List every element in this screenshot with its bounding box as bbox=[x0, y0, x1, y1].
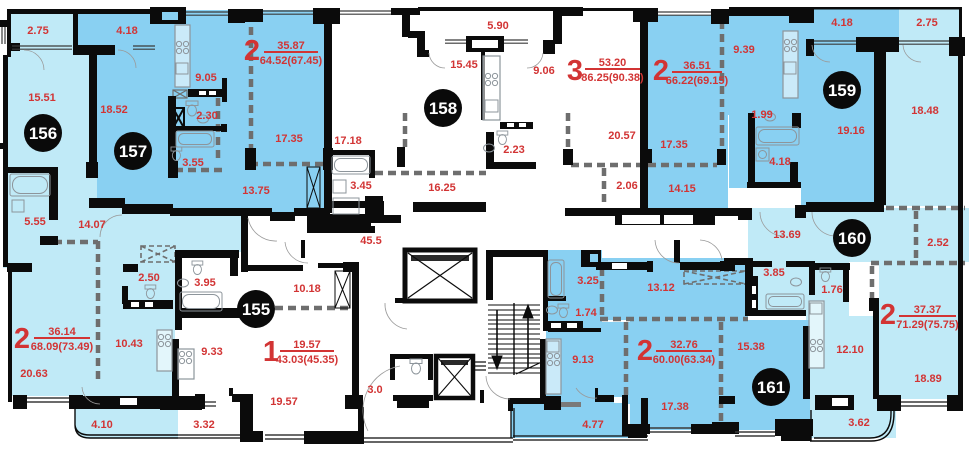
svg-text:86.25(90.38): 86.25(90.38) bbox=[581, 72, 644, 84]
svg-text:20.63: 20.63 bbox=[20, 368, 48, 380]
svg-text:15.38: 15.38 bbox=[737, 341, 765, 353]
svg-text:18.48: 18.48 bbox=[911, 105, 939, 117]
svg-text:4.77: 4.77 bbox=[582, 419, 603, 431]
svg-text:2.23: 2.23 bbox=[503, 144, 524, 156]
svg-text:12.10: 12.10 bbox=[836, 344, 864, 356]
svg-text:17.35: 17.35 bbox=[275, 133, 303, 145]
svg-text:53.20: 53.20 bbox=[599, 57, 627, 69]
svg-text:3.32: 3.32 bbox=[193, 419, 214, 431]
svg-text:5.90: 5.90 bbox=[487, 20, 508, 32]
svg-text:157: 157 bbox=[119, 142, 147, 161]
svg-text:2: 2 bbox=[244, 35, 260, 67]
svg-text:20.57: 20.57 bbox=[608, 130, 636, 142]
svg-text:17.38: 17.38 bbox=[661, 401, 689, 413]
svg-text:13.75: 13.75 bbox=[242, 185, 270, 197]
svg-text:3.0: 3.0 bbox=[367, 384, 382, 396]
svg-text:9.33: 9.33 bbox=[201, 346, 222, 358]
svg-text:2: 2 bbox=[637, 335, 653, 367]
svg-text:16.25: 16.25 bbox=[428, 182, 456, 194]
svg-text:3.45: 3.45 bbox=[350, 180, 371, 192]
svg-text:37.37: 37.37 bbox=[914, 304, 942, 316]
svg-text:13.12: 13.12 bbox=[647, 282, 675, 294]
svg-text:19.57: 19.57 bbox=[293, 339, 321, 351]
svg-text:155: 155 bbox=[242, 300, 270, 319]
svg-text:13.69: 13.69 bbox=[773, 229, 801, 241]
svg-text:1.99: 1.99 bbox=[751, 109, 772, 121]
svg-text:14.15: 14.15 bbox=[668, 183, 696, 195]
svg-text:2.52: 2.52 bbox=[927, 237, 948, 249]
svg-text:9.05: 9.05 bbox=[195, 72, 216, 84]
svg-text:4.18: 4.18 bbox=[831, 17, 852, 29]
svg-text:18.52: 18.52 bbox=[100, 104, 128, 116]
svg-text:4.10: 4.10 bbox=[91, 419, 112, 431]
svg-text:18.89: 18.89 bbox=[914, 373, 942, 385]
svg-text:64.52(67.45): 64.52(67.45) bbox=[260, 55, 323, 67]
svg-text:3.62: 3.62 bbox=[848, 417, 869, 429]
svg-text:32.76: 32.76 bbox=[670, 339, 698, 351]
svg-text:14.07: 14.07 bbox=[78, 219, 106, 231]
svg-text:15.51: 15.51 bbox=[28, 92, 56, 104]
svg-text:5.55: 5.55 bbox=[24, 216, 45, 228]
svg-text:3.85: 3.85 bbox=[763, 267, 784, 279]
svg-text:71.29(75.75): 71.29(75.75) bbox=[896, 319, 959, 331]
svg-text:35.87: 35.87 bbox=[277, 40, 305, 52]
svg-text:36.14: 36.14 bbox=[48, 326, 76, 338]
svg-text:9.06: 9.06 bbox=[533, 65, 554, 77]
svg-text:2: 2 bbox=[14, 323, 30, 355]
svg-text:66.22(69.15): 66.22(69.15) bbox=[666, 75, 729, 87]
svg-text:19.57: 19.57 bbox=[270, 396, 298, 408]
svg-text:2.06: 2.06 bbox=[616, 180, 637, 192]
svg-text:10.18: 10.18 bbox=[293, 283, 321, 295]
svg-text:17.18: 17.18 bbox=[334, 135, 362, 147]
svg-text:2.50: 2.50 bbox=[138, 272, 159, 284]
svg-text:3.55: 3.55 bbox=[182, 157, 203, 169]
svg-text:2: 2 bbox=[880, 299, 896, 331]
svg-text:68.09(73.49): 68.09(73.49) bbox=[31, 341, 94, 353]
svg-text:4.18: 4.18 bbox=[116, 25, 137, 37]
svg-text:60.00(63.34): 60.00(63.34) bbox=[653, 354, 716, 366]
svg-text:15.45: 15.45 bbox=[450, 59, 478, 71]
svg-text:19.16: 19.16 bbox=[837, 125, 865, 137]
svg-text:156: 156 bbox=[29, 124, 57, 143]
svg-text:2.75: 2.75 bbox=[27, 25, 48, 37]
svg-text:160: 160 bbox=[838, 229, 866, 248]
svg-text:4.18: 4.18 bbox=[769, 156, 790, 168]
svg-text:9.13: 9.13 bbox=[572, 354, 593, 366]
svg-text:45.5: 45.5 bbox=[360, 235, 381, 247]
svg-text:9.39: 9.39 bbox=[733, 44, 754, 56]
svg-text:3.95: 3.95 bbox=[194, 277, 215, 289]
svg-text:158: 158 bbox=[429, 99, 457, 118]
svg-text:36.51: 36.51 bbox=[683, 60, 711, 72]
svg-text:17.35: 17.35 bbox=[660, 139, 688, 151]
svg-text:2.30: 2.30 bbox=[196, 110, 217, 122]
svg-text:161: 161 bbox=[757, 378, 785, 397]
svg-text:1.76: 1.76 bbox=[821, 284, 842, 296]
svg-text:3.25: 3.25 bbox=[577, 275, 598, 287]
svg-text:10.43: 10.43 bbox=[115, 338, 143, 350]
svg-text:43.03(45.35): 43.03(45.35) bbox=[276, 354, 339, 366]
svg-text:2.75: 2.75 bbox=[916, 17, 937, 29]
svg-text:159: 159 bbox=[828, 81, 856, 100]
svg-text:1.74: 1.74 bbox=[575, 307, 597, 319]
